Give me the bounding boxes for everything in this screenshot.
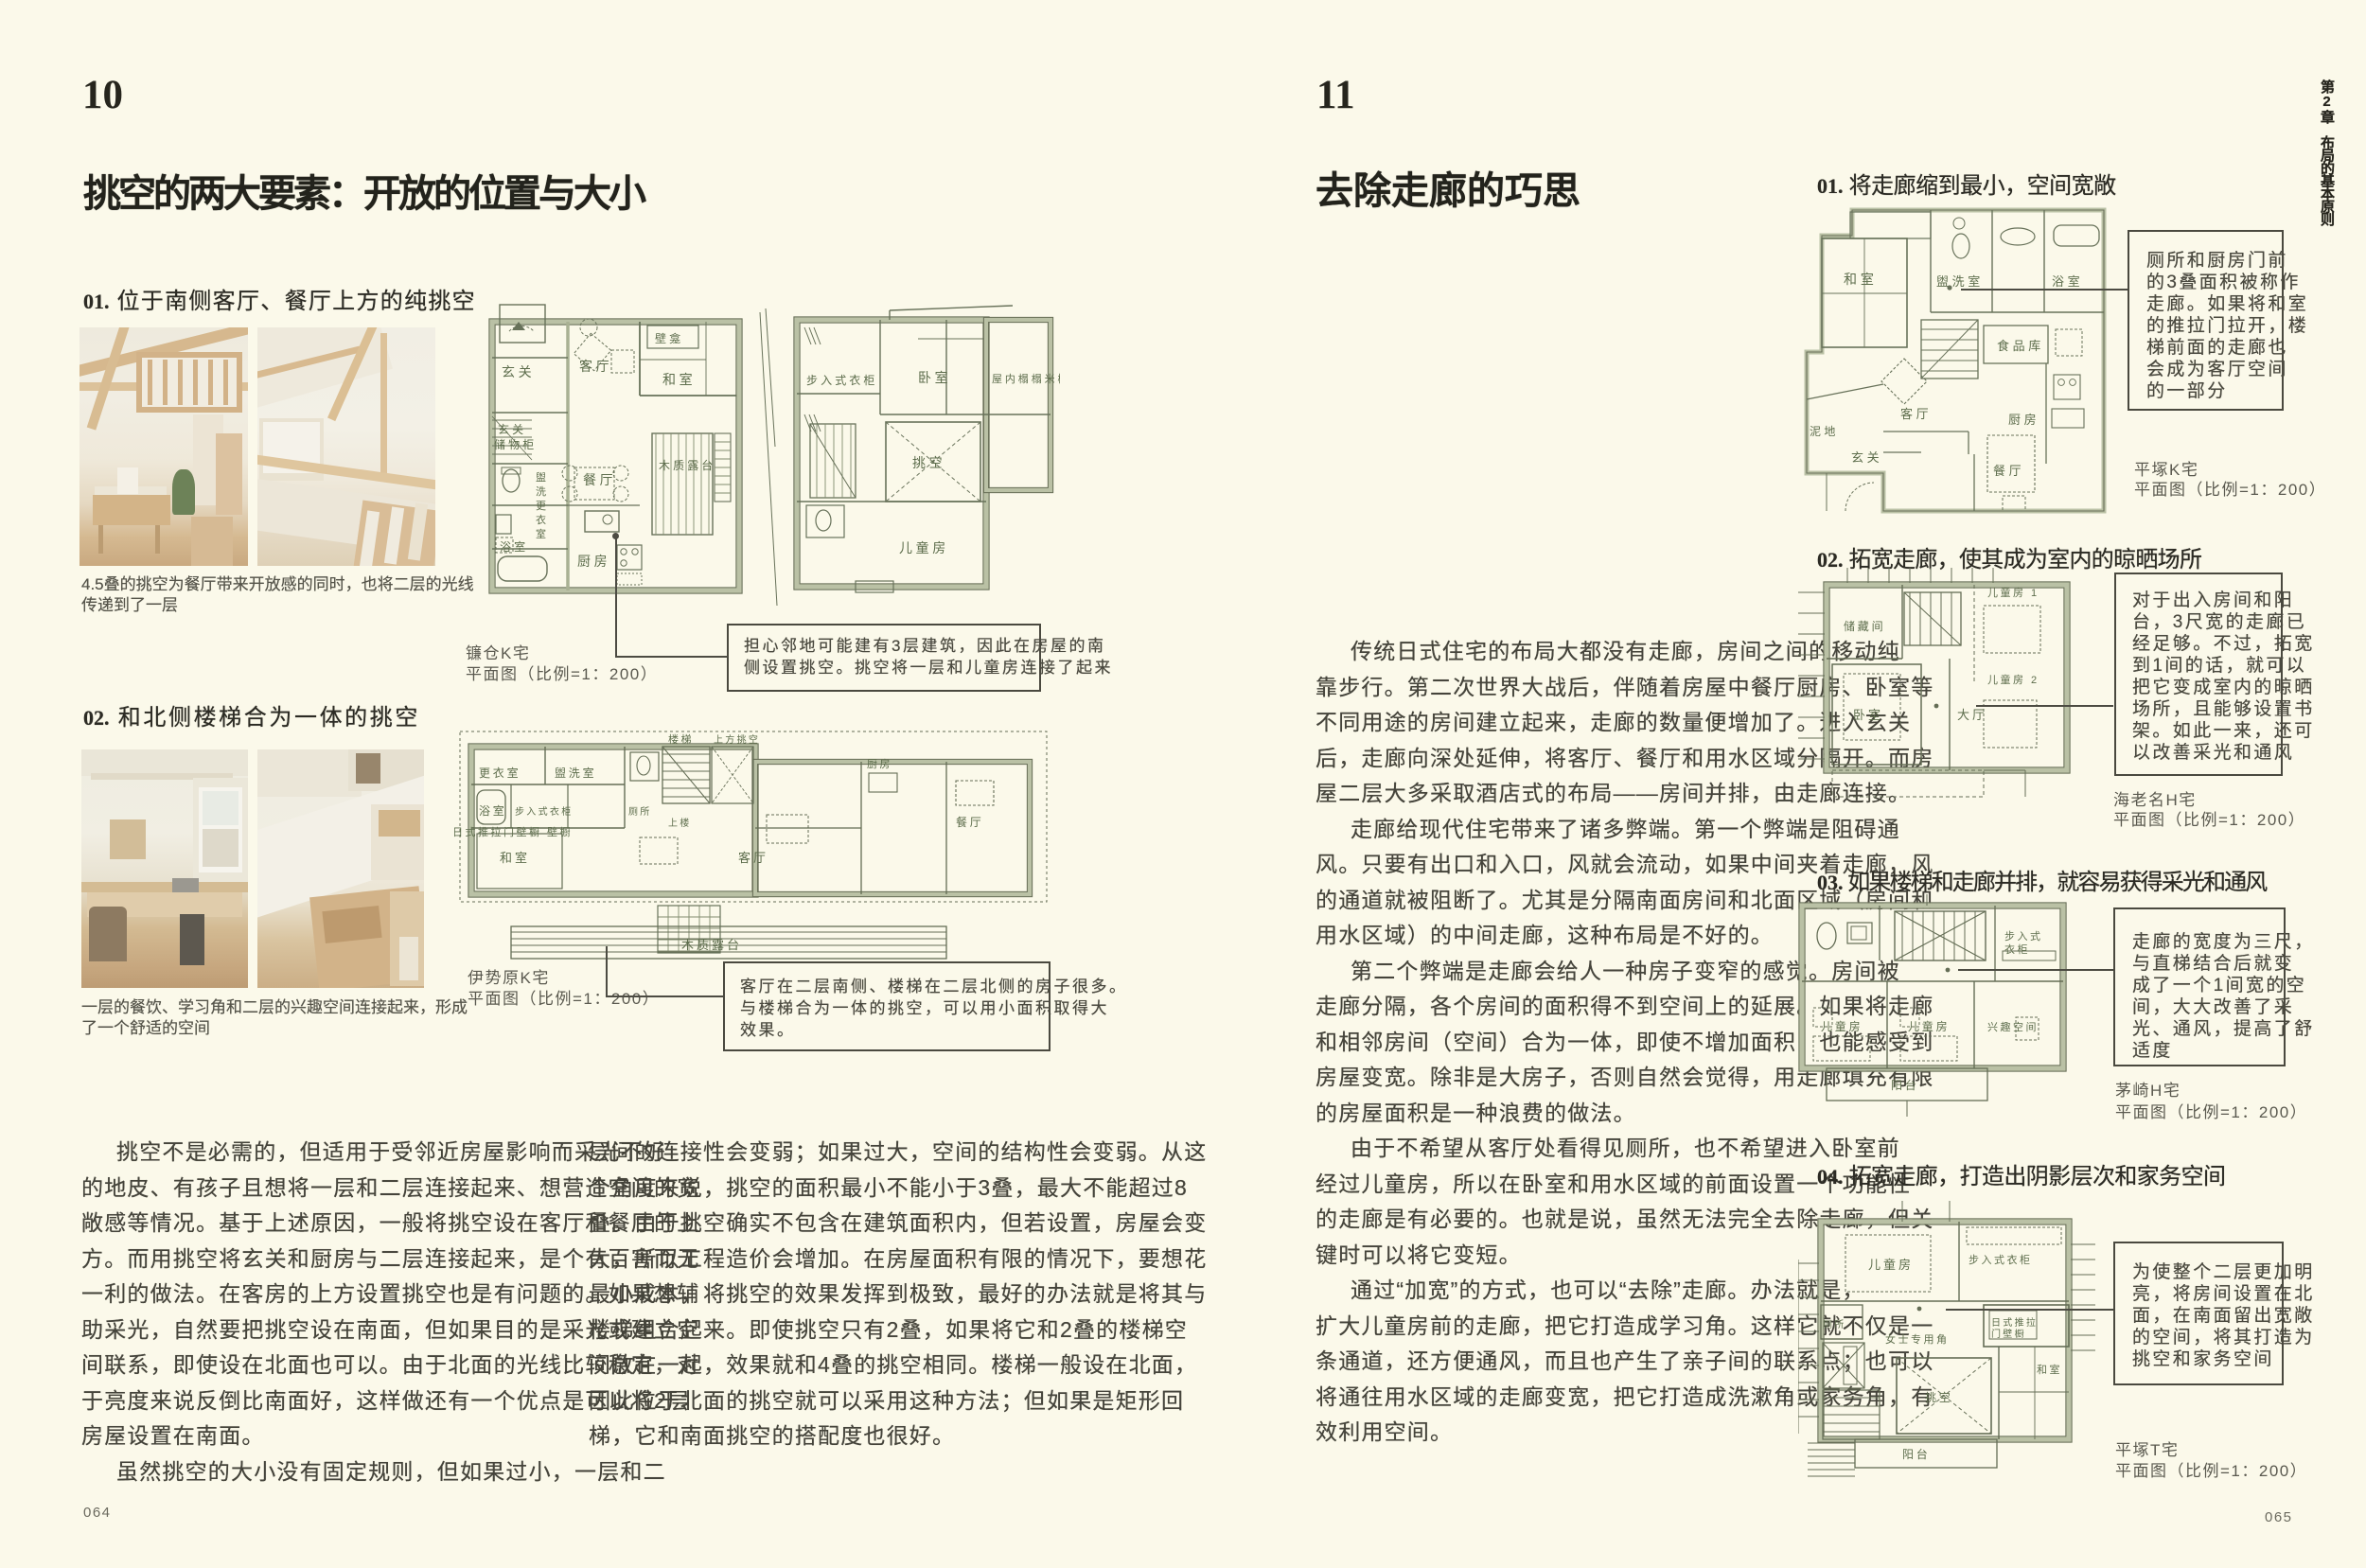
svg-text:木质露台: 木质露台 [659, 458, 715, 472]
svg-text:浴室: 浴室 [479, 803, 507, 818]
svg-text:盥: 盥 [536, 471, 549, 484]
svg-text:屋内榻榻米橱: 屋内榻榻米橱 [992, 372, 1060, 385]
svg-text:儿童房 1: 儿童房 1 [1987, 586, 2039, 599]
svg-text:和室: 和室 [2037, 1363, 2062, 1376]
svg-text:更: 更 [536, 501, 549, 512]
svg-text:客厅: 客厅 [579, 359, 612, 374]
svg-text:室: 室 [536, 527, 549, 540]
svg-text:餐厅: 餐厅 [583, 472, 616, 487]
svg-text:日式推拉: 日式推拉 [1991, 1316, 2038, 1329]
svg-text:衣: 衣 [536, 513, 549, 526]
svg-text:厨房: 厨房 [867, 758, 892, 770]
svg-text:餐厅: 餐厅 [1993, 464, 2024, 478]
svg-text:挑空: 挑空 [912, 455, 945, 470]
svg-text:和室: 和室 [500, 851, 530, 865]
svg-text:玄关: 玄关 [498, 422, 526, 436]
svg-text:阳台: 阳台 [1891, 1078, 1919, 1092]
svg-text:盥洗室: 盥洗室 [1936, 274, 1984, 289]
svg-text:玄关: 玄关 [502, 364, 535, 379]
svg-text:厨房: 厨房 [2008, 413, 2039, 427]
svg-text:厕所: 厕所 [628, 806, 652, 818]
svg-text:步入式衣柜: 步入式衣柜 [515, 805, 574, 818]
svg-text:步入式: 步入式 [2004, 930, 2043, 943]
svg-text:上楼: 上楼 [668, 817, 692, 829]
svg-text:大厅: 大厅 [1957, 708, 1987, 722]
svg-text:兴趣空间: 兴趣空间 [1987, 1020, 2039, 1033]
svg-text:卧室: 卧室 [918, 370, 951, 385]
svg-text:儿童房: 儿童房 [1821, 1019, 1863, 1033]
svg-text:更衣室: 更衣室 [479, 766, 521, 780]
svg-text:挑空: 挑空 [1925, 1391, 1953, 1404]
svg-text:木质露台: 木质露台 [681, 938, 742, 952]
svg-text:日式推拉门壁橱 壁橱: 日式推拉门壁橱 壁橱 [454, 825, 573, 838]
svg-text:盥洗室: 盥洗室 [555, 766, 596, 780]
svg-text:儿童房: 儿童房 [1868, 1258, 1914, 1272]
svg-text:卧室: 卧室 [1853, 708, 1883, 722]
svg-text:客厅: 客厅 [1900, 407, 1932, 421]
svg-text:浴室: 浴室 [2052, 274, 2083, 289]
svg-text:儿童房: 儿童房 [899, 540, 949, 555]
svg-text:阳台: 阳台 [1902, 1447, 1931, 1461]
svg-text:壁龛: 壁龛 [655, 331, 683, 345]
svg-text:衣柜: 衣柜 [2004, 943, 2030, 956]
svg-text:储物柜: 储物柜 [494, 437, 537, 451]
svg-text:和室: 和室 [662, 372, 696, 387]
svg-text:儿童房: 儿童房 [1908, 1019, 1950, 1033]
svg-text:玄关: 玄关 [1851, 450, 1882, 465]
svg-text:浴室: 浴室 [500, 539, 528, 554]
svg-text:儿童房 2: 儿童房 2 [1987, 673, 2039, 686]
svg-text:泥地: 泥地 [1810, 425, 1839, 438]
svg-text:步入式衣柜: 步入式衣柜 [1969, 1253, 2033, 1266]
svg-text:储藏间: 储藏间 [1844, 619, 1885, 633]
svg-text:厕所: 厕所 [1823, 1319, 1846, 1330]
svg-text:洗: 洗 [536, 485, 549, 498]
svg-text:厨房: 厨房 [577, 554, 610, 569]
svg-text:餐厅: 餐厅 [956, 815, 984, 829]
svg-text:楼梯: 楼梯 [668, 732, 694, 746]
svg-text:客厅: 客厅 [738, 851, 768, 865]
svg-text:上方挑空: 上方挑空 [714, 733, 760, 746]
svg-text:女士专用角: 女士专用角 [1885, 1332, 1950, 1346]
svg-text:食品库: 食品库 [1997, 339, 2044, 353]
svg-text:步入式衣柜: 步入式衣柜 [806, 373, 878, 387]
svg-text:和室: 和室 [1844, 272, 1878, 287]
svg-text:门壁橱: 门壁橱 [1991, 1328, 2026, 1340]
